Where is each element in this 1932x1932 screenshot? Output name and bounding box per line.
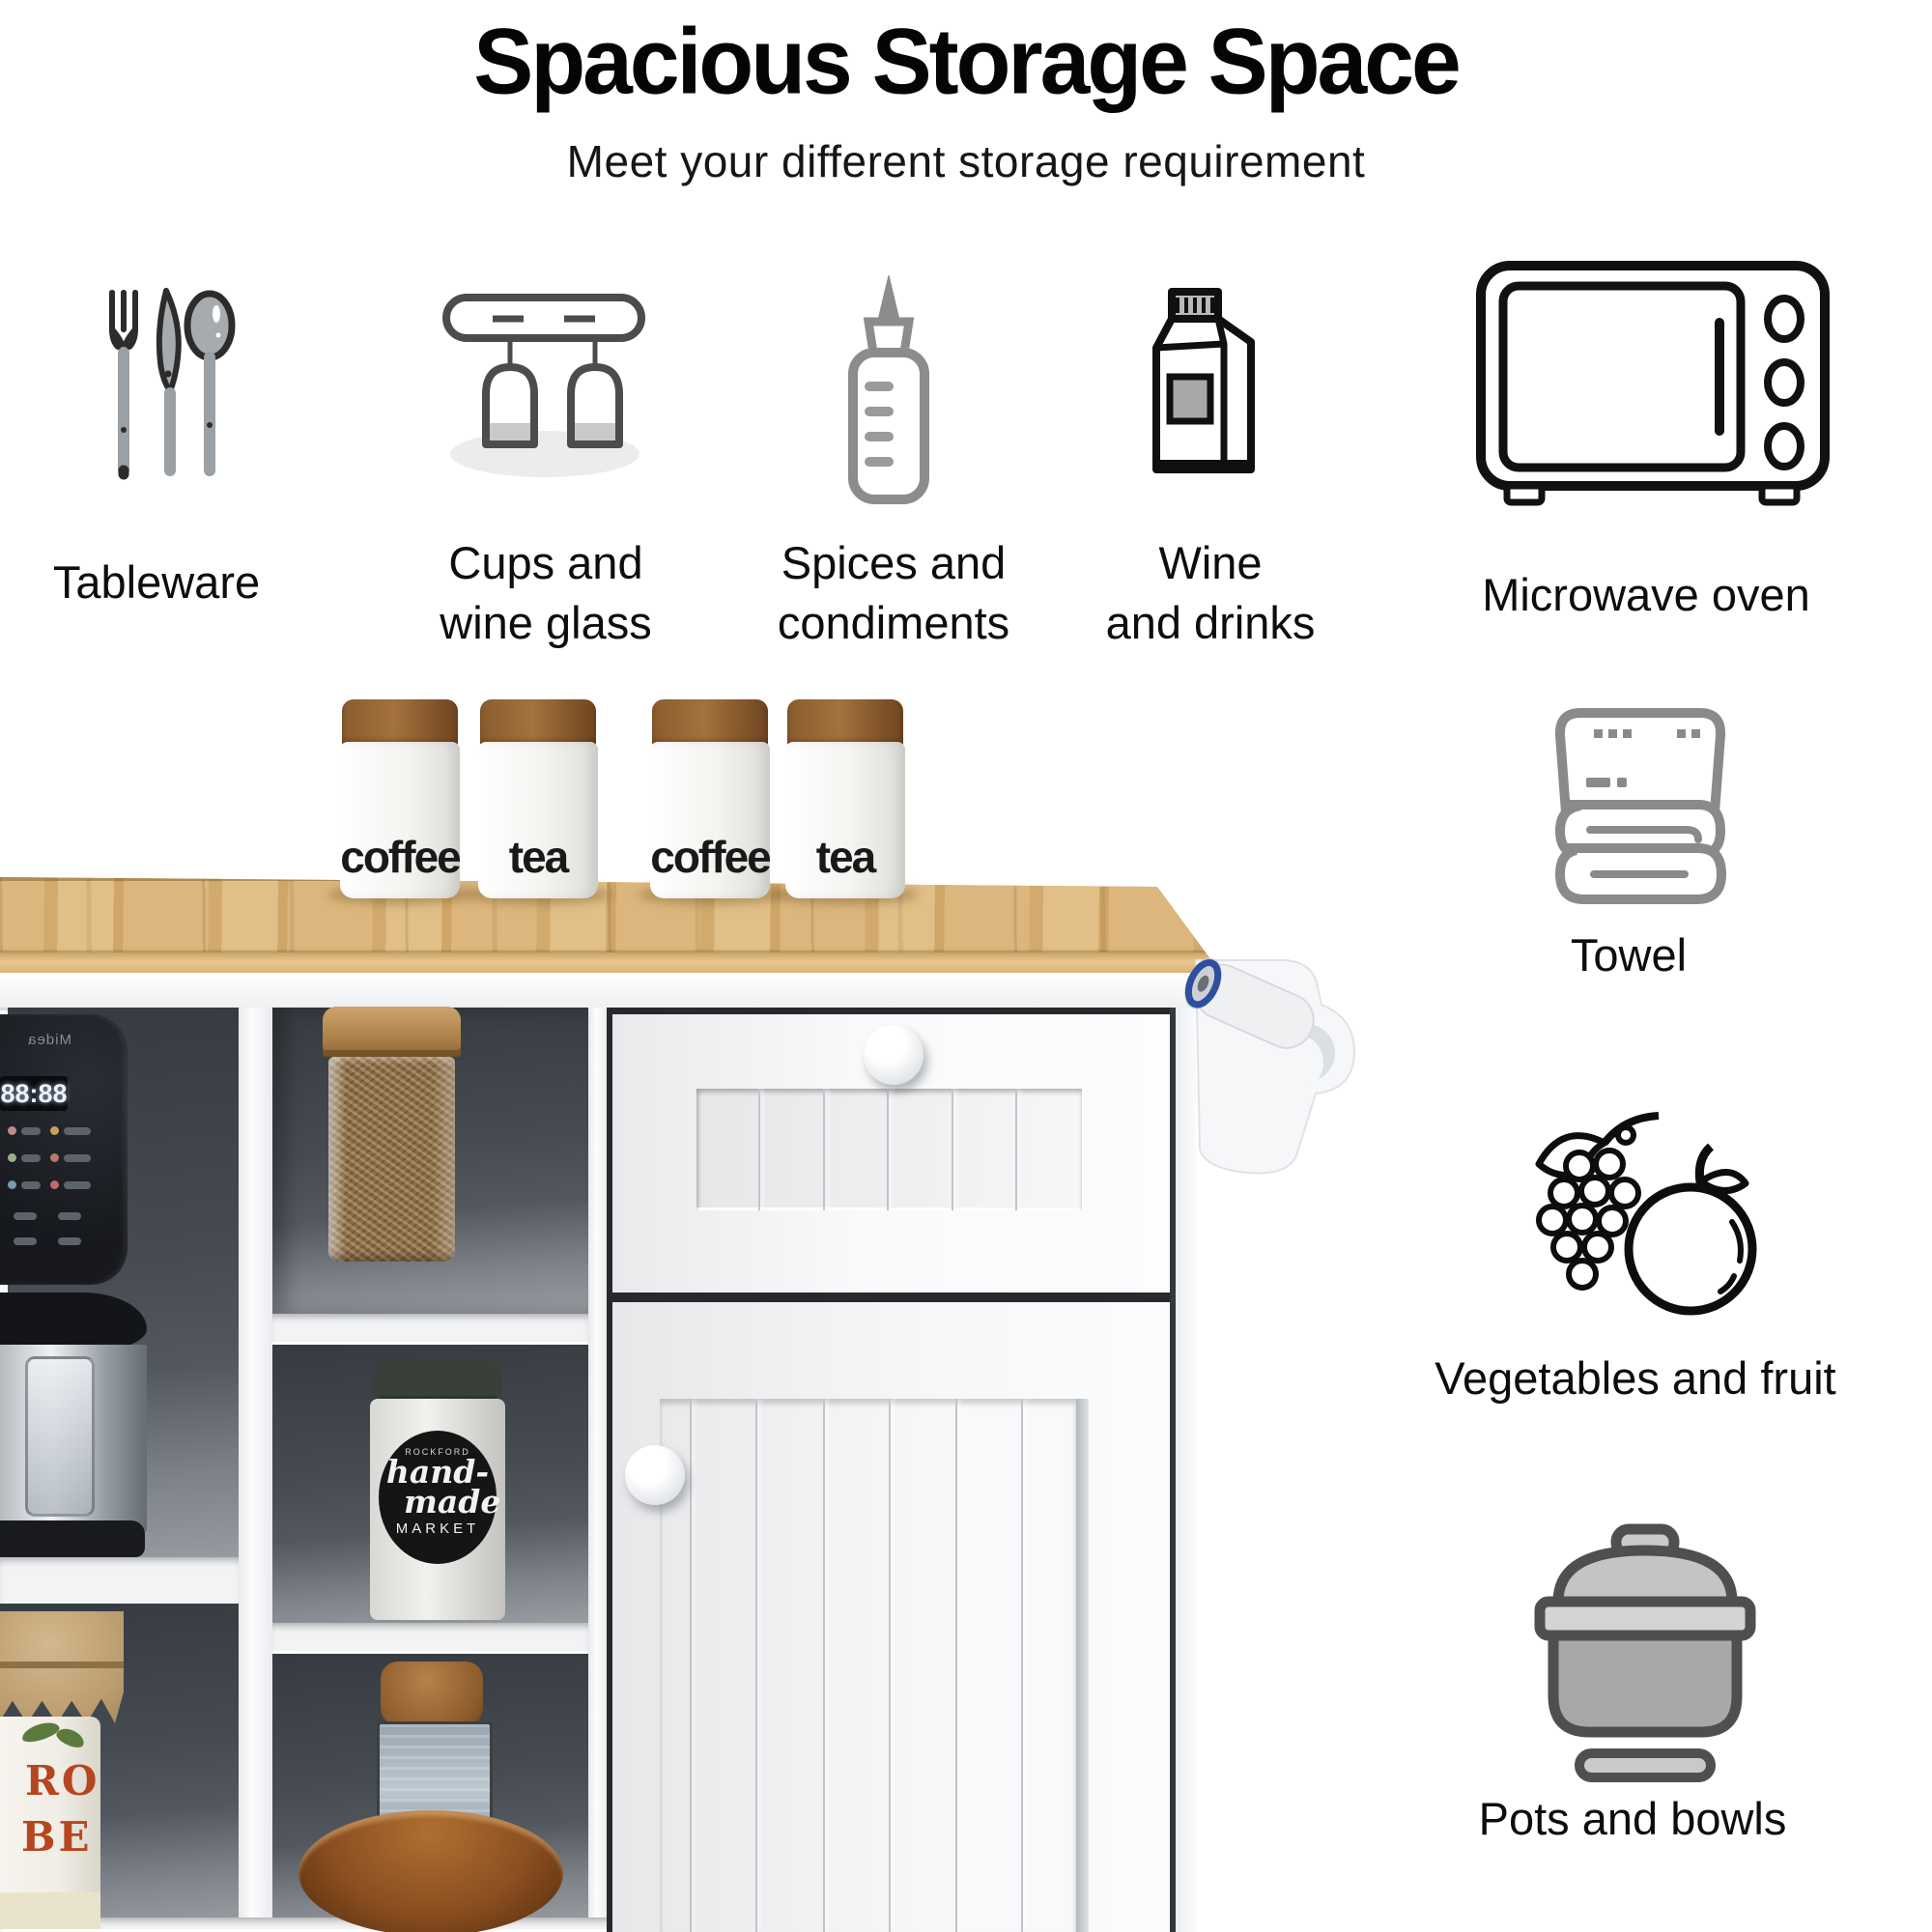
drawer-front xyxy=(612,1014,1173,1293)
feature-label-wine: Wine and drinks xyxy=(1065,533,1355,653)
feature-label-tableware: Tableware xyxy=(12,553,301,612)
canister-lid xyxy=(480,699,596,747)
drawer-beadboard xyxy=(696,1089,1082,1210)
wood-countertop xyxy=(0,874,1219,973)
canister-lid xyxy=(787,699,903,747)
page-subtitle: Meet your different storage requirement xyxy=(0,135,1932,187)
squeeze-bottle-icon xyxy=(838,273,939,505)
door-beadboard xyxy=(660,1399,1076,1932)
kitchen-cart-photo: Midea 88:88 xyxy=(0,973,1196,1932)
grapes-fruit-icon xyxy=(1512,1104,1763,1331)
feature-label-pots: Pots and bowls xyxy=(1439,1789,1826,1849)
wooden-bowl xyxy=(298,1810,563,1932)
door-knob xyxy=(625,1445,685,1505)
cutlery-icon xyxy=(97,285,237,483)
appliance-display: 88:88 xyxy=(0,1076,68,1111)
folded-towel-icon xyxy=(1544,708,1737,906)
canister-tea-1: tea xyxy=(478,699,598,898)
appliance-logo: Midea xyxy=(4,1032,71,1048)
mid-shelf-2 xyxy=(272,1623,588,1654)
square-jar-lid xyxy=(381,1662,483,1725)
grain-jar xyxy=(328,1057,455,1262)
canister-coffee-2: coffee xyxy=(650,699,770,898)
product-infographic: Spacious Storage Space Meet your differe… xyxy=(0,0,1932,1932)
feature-label-spices: Spices and condiments xyxy=(749,533,1038,653)
microwave-icon xyxy=(1474,259,1832,510)
divider-right xyxy=(588,1008,609,1924)
feature-label-microwave: Microwave oven xyxy=(1453,565,1839,625)
canister-tea-2: tea xyxy=(785,699,905,898)
pickle-jar-text-1: RO xyxy=(25,1757,100,1804)
leaf-decoration xyxy=(20,1719,62,1746)
kettle xyxy=(0,1345,147,1531)
cabinet-top-band xyxy=(0,973,1196,1010)
wine-glass-rack-icon xyxy=(442,290,647,483)
canister-lid xyxy=(342,699,458,747)
divider-left xyxy=(239,1008,272,1924)
drawer-top-gap xyxy=(612,1008,1173,1014)
page-title: Spacious Storage Space xyxy=(0,8,1932,115)
drawer-knob xyxy=(864,1025,923,1085)
pressure-cooker: Midea 88:88 xyxy=(0,1014,128,1285)
cooking-pot-icon xyxy=(1520,1524,1771,1780)
drink-carton-icon xyxy=(1143,288,1272,483)
feature-label-vegetables: Vegetables and fruit xyxy=(1394,1349,1877,1408)
grain-jar-lid xyxy=(323,1007,461,1057)
left-shelf xyxy=(0,1557,239,1610)
feature-label-towel: Towel xyxy=(1484,925,1774,985)
towel-rack xyxy=(1188,945,1372,1201)
pickle-jar-text-2: BE xyxy=(21,1813,93,1861)
handmade-jar-label: ROCKFORD hand- made MARKET xyxy=(379,1431,497,1564)
canister-lid xyxy=(652,699,768,747)
feature-label-cups: Cups and wine glass xyxy=(401,533,691,653)
pickle-jar: RO BE xyxy=(0,1717,100,1929)
cabinet-door xyxy=(612,1302,1173,1932)
kettle-lid xyxy=(0,1293,147,1352)
canister-coffee-1: coffee xyxy=(340,699,460,898)
handmade-jar: ROCKFORD hand- made MARKET xyxy=(370,1399,505,1620)
drawer-door-gap xyxy=(612,1293,1173,1302)
mid-shelf-1 xyxy=(272,1314,588,1345)
